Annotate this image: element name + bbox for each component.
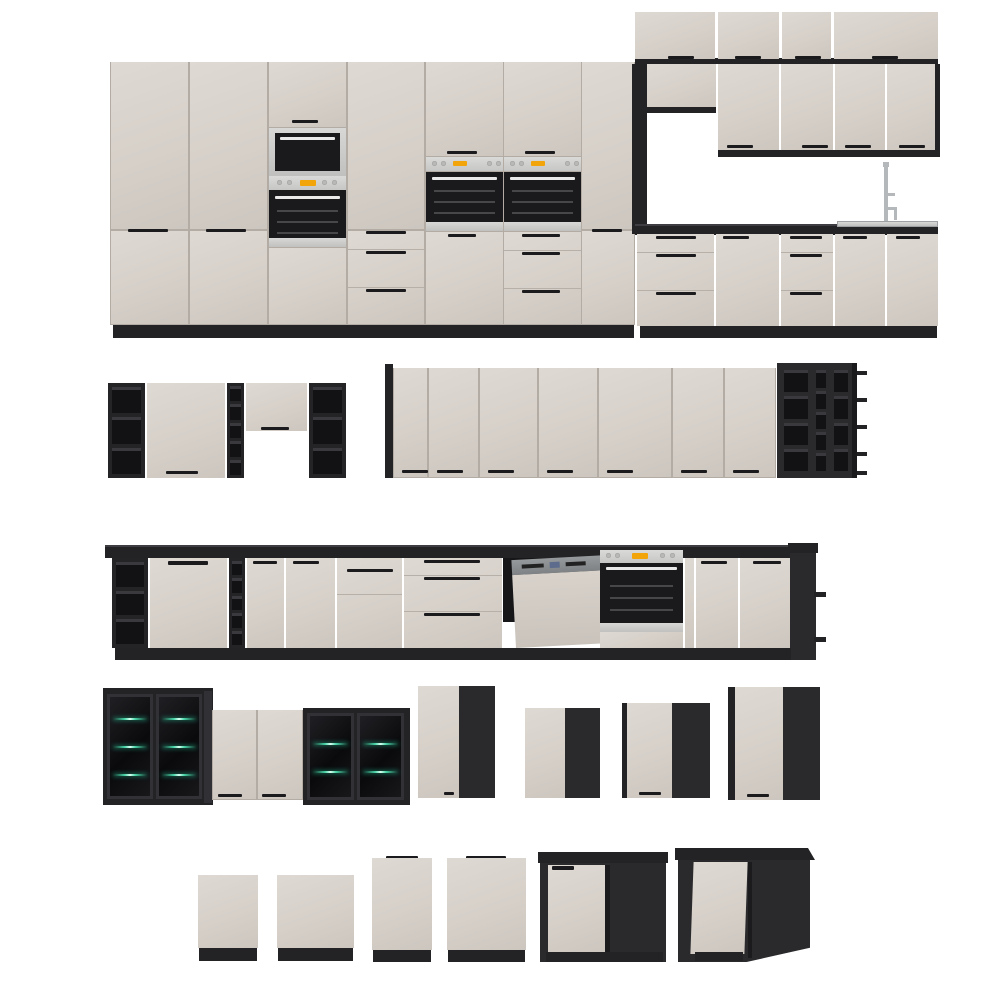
- oven-knob: [432, 161, 437, 166]
- render-sheet: [0, 0, 1000, 1000]
- shelf-grid-col: [781, 367, 811, 474]
- handle: [424, 613, 480, 616]
- front-panel-plinth: [199, 948, 257, 961]
- oven-knob: [510, 161, 515, 166]
- oven-knob: [487, 161, 492, 166]
- plinth: [113, 325, 634, 338]
- faucet-spout-down: [894, 209, 897, 220]
- glass-shelf: [113, 774, 147, 776]
- plinth: [640, 326, 937, 338]
- oven-rack: [434, 201, 495, 203]
- oven-knob: [565, 161, 570, 166]
- handle: [872, 56, 898, 59]
- tall-end-panel: [632, 64, 647, 234]
- dishwasher-front-panel: [372, 858, 432, 950]
- corner-wall-door: [735, 687, 783, 800]
- handle: [547, 470, 573, 473]
- glass-shelf: [363, 771, 398, 773]
- dishwasher-display: [550, 562, 560, 569]
- narrow-shelf-column: [227, 383, 244, 478]
- corner-base-plinth: [546, 952, 663, 962]
- drawer-base-unit: [404, 558, 502, 648]
- glass-shelf: [162, 774, 196, 776]
- handle: [293, 561, 319, 564]
- handle: [424, 577, 480, 580]
- counter-overhang: [788, 543, 818, 553]
- handle: [668, 56, 694, 59]
- handle: [899, 145, 925, 148]
- l-corner-seam: [748, 862, 752, 958]
- oven-knob: [277, 180, 282, 185]
- drawer-base-unit: [637, 234, 714, 326]
- handle: [424, 560, 480, 563]
- shelf-fin: [857, 452, 867, 456]
- faucet-lever: [888, 193, 895, 196]
- corner-wall-side: [783, 687, 820, 800]
- handle: [656, 292, 696, 295]
- handle: [366, 289, 406, 292]
- tall-lower-door: [582, 231, 634, 324]
- front-panel-plinth: [373, 950, 431, 962]
- corner-wall-door: [418, 686, 459, 798]
- handle: [444, 792, 454, 795]
- tall-door: [582, 62, 634, 229]
- handle: [802, 145, 828, 148]
- oven-display: [300, 180, 316, 186]
- corner-base-door: [548, 865, 605, 952]
- wall-door: [429, 368, 478, 477]
- handle: [366, 251, 406, 254]
- shelf-grid-col: [813, 367, 829, 474]
- wall-door: [725, 368, 775, 477]
- handle: [733, 470, 759, 473]
- wall-door: [599, 368, 671, 477]
- drawer-gap: [404, 611, 502, 612]
- glass-door: [156, 694, 202, 799]
- shelf-fin: [857, 398, 867, 402]
- sink-base-door: [887, 234, 938, 326]
- faucet-top: [883, 162, 889, 167]
- wall-cabinet-door: [835, 64, 885, 151]
- oven-rack: [277, 232, 338, 234]
- bridge-wall-cabinet: [647, 64, 716, 108]
- base-door: [150, 558, 227, 648]
- dishwasher-open-door: [511, 555, 607, 648]
- wall-door: [147, 383, 225, 478]
- dishwasher-front-panel: [447, 858, 526, 950]
- glass-shelf: [113, 746, 147, 748]
- appliance-top-door: [269, 62, 346, 127]
- oven-rack: [277, 210, 338, 212]
- dishwasher-door-panel: [512, 570, 608, 648]
- oven-bottom-trim: [426, 222, 503, 231]
- oven-filler: [600, 632, 683, 648]
- glass-shelf: [313, 771, 348, 773]
- top-wall-cabinet: [782, 12, 831, 59]
- wall-end-panel: [935, 64, 940, 157]
- drawer-stack: [504, 232, 581, 324]
- base-door: [696, 558, 738, 648]
- oven-top-door: [426, 62, 503, 156]
- wall-door: [673, 368, 723, 477]
- base-door: [740, 558, 790, 648]
- handle: [488, 470, 514, 473]
- handle: [366, 231, 406, 234]
- shelf-fin: [857, 371, 867, 375]
- appliance-front-panel: [277, 875, 354, 948]
- handle: [448, 234, 476, 237]
- shelf-fin: [857, 471, 867, 475]
- handle: [790, 254, 822, 257]
- oven-knob: [519, 161, 524, 166]
- front-panel-plinth: [448, 950, 525, 962]
- wall-cabinet-door: [718, 64, 779, 151]
- wall-door: [480, 368, 537, 477]
- narrow-shelf-column: [229, 558, 245, 648]
- base-door: [716, 234, 779, 326]
- l-corner-counter: [675, 848, 815, 860]
- drawer-gap: [348, 249, 424, 250]
- handle: [656, 236, 696, 239]
- base-door: [247, 558, 284, 648]
- glass-door: [107, 694, 153, 799]
- handle: [347, 569, 393, 572]
- bridge-cabinet: [246, 383, 307, 431]
- shelf-side: [852, 363, 857, 478]
- oven-bottom-trim: [600, 623, 683, 632]
- handle: [128, 229, 168, 232]
- handle: [607, 470, 633, 473]
- glass-shelf: [113, 718, 147, 720]
- open-shelf-unit: [309, 383, 346, 478]
- filler-panel: [685, 558, 694, 648]
- drawer-gap: [504, 288, 581, 289]
- oven-display: [531, 161, 545, 166]
- oven-rack: [512, 190, 573, 192]
- oven-knob: [322, 180, 327, 185]
- handle: [261, 427, 289, 430]
- handle: [168, 561, 208, 565]
- cabinet-side-panel: [204, 691, 212, 803]
- shelf-grid-col: [831, 367, 851, 474]
- glass-shelf: [313, 743, 348, 745]
- open-shelf-unit: [112, 558, 148, 648]
- oven-rack: [610, 609, 673, 611]
- corner-wall-side: [565, 708, 600, 798]
- oven-handle-bar: [275, 196, 340, 199]
- shelf-fin: [857, 425, 867, 429]
- wall-cabinet-bottom: [718, 150, 938, 157]
- corner-base-counter: [538, 852, 668, 863]
- oven-bottom-trim: [269, 238, 346, 247]
- oven-knob: [496, 161, 501, 166]
- microwave-handle-bar: [280, 137, 335, 140]
- oven-knob: [441, 161, 446, 166]
- wall-door: [213, 710, 256, 799]
- oven-knob: [574, 161, 579, 166]
- handle: [447, 151, 477, 154]
- tall-door: [111, 62, 188, 229]
- handle: [723, 236, 749, 239]
- handle: [525, 151, 555, 154]
- wall-cabinet-door: [781, 64, 833, 151]
- countertop-edge: [105, 545, 813, 547]
- sink-base-door: [835, 234, 885, 326]
- handle: [218, 794, 242, 797]
- tall-door: [190, 62, 267, 229]
- handle: [727, 145, 753, 148]
- oven-rack: [434, 190, 495, 192]
- wall-door: [394, 368, 427, 477]
- oven-display: [453, 161, 467, 166]
- handle: [747, 794, 769, 797]
- corner-wall-side: [672, 703, 710, 798]
- drawer-gap: [504, 250, 581, 251]
- corner-wall-edge: [728, 687, 735, 800]
- drawer-gap: [348, 287, 424, 288]
- appliance-front-panel: [198, 875, 258, 948]
- shelf-fin: [814, 637, 826, 642]
- handle: [795, 56, 821, 59]
- corner-wall-door: [525, 708, 565, 798]
- handle: [552, 866, 574, 870]
- wall-door: [539, 368, 597, 477]
- oven-rack: [610, 585, 673, 587]
- tall-lower-door: [111, 231, 188, 324]
- handle: [790, 236, 822, 239]
- handle: [896, 236, 920, 239]
- top-wall-cabinet: [718, 12, 779, 59]
- handle: [592, 229, 622, 232]
- handle: [701, 561, 727, 564]
- corner-wall-side: [459, 686, 495, 798]
- handle: [206, 229, 246, 232]
- handle: [262, 794, 286, 797]
- top-wall-cabinet: [635, 12, 715, 59]
- glass-door: [357, 713, 404, 800]
- handle: [681, 470, 707, 473]
- oven-lower-door: [426, 232, 503, 324]
- tall-door: [348, 62, 424, 229]
- open-shelf-end-unit: [790, 553, 816, 660]
- sink: [837, 221, 938, 227]
- handle: [753, 561, 781, 564]
- shelf-fin: [814, 592, 826, 597]
- l-corner-plinth: [695, 952, 743, 961]
- tall-lower-door: [190, 231, 267, 324]
- plinth: [115, 648, 791, 660]
- glass-door: [307, 713, 354, 800]
- drawer-gap: [781, 252, 833, 253]
- drawer-gap: [781, 290, 833, 291]
- handle: [845, 145, 871, 148]
- handle: [656, 254, 696, 257]
- oven-display: [632, 553, 648, 559]
- handle: [437, 470, 463, 473]
- oven-rack: [512, 212, 573, 214]
- open-shelf-unit: [108, 383, 145, 478]
- oven-knob: [615, 553, 620, 558]
- handle: [402, 470, 428, 473]
- glass-shelf: [363, 743, 398, 745]
- drawer-base-unit: [781, 234, 833, 326]
- front-panel-plinth: [278, 948, 353, 961]
- top-wall-cabinet: [834, 12, 938, 59]
- wall-door: [258, 710, 302, 799]
- bridge-bottom: [647, 107, 716, 113]
- handle: [790, 292, 822, 295]
- oven-rack: [610, 597, 673, 599]
- corner-base-gap: [605, 865, 610, 952]
- corner-wall-door: [627, 703, 672, 798]
- oven-handle-bar: [510, 177, 575, 180]
- handle: [292, 120, 318, 123]
- oven-rack: [512, 201, 573, 203]
- oven-knob: [606, 553, 611, 558]
- oven-rack: [434, 212, 495, 214]
- oven-top-door: [504, 62, 581, 156]
- drawer-stack: [348, 231, 424, 324]
- drawer-gap: [337, 594, 402, 595]
- handle: [522, 234, 560, 237]
- drawer-gap: [637, 290, 714, 291]
- glass-shelf: [162, 718, 196, 720]
- oven-knob: [332, 180, 337, 185]
- oven-rack: [277, 221, 338, 223]
- oven-knob: [660, 553, 665, 558]
- base-door: [286, 558, 335, 648]
- handle: [253, 561, 277, 564]
- handle: [522, 252, 560, 255]
- handle: [843, 236, 867, 239]
- handle: [735, 56, 761, 59]
- oven-door-glass: [600, 563, 683, 623]
- handle: [639, 792, 661, 795]
- appliance-bottom-door: [269, 248, 346, 324]
- oven-knob: [670, 553, 675, 558]
- oven-bottom-trim: [504, 222, 581, 231]
- oven-knob: [287, 180, 292, 185]
- handle: [522, 290, 560, 293]
- run-end-panel: [385, 364, 393, 478]
- wall-cabinet-door: [887, 64, 938, 151]
- drawer-gap: [404, 575, 502, 576]
- handle: [166, 471, 198, 474]
- l-corner-recessed-door: [690, 862, 747, 954]
- glass-shelf: [162, 746, 196, 748]
- oven-handle-bar: [432, 177, 497, 180]
- drawer-gap: [637, 252, 714, 253]
- oven-handle-bar: [606, 567, 677, 570]
